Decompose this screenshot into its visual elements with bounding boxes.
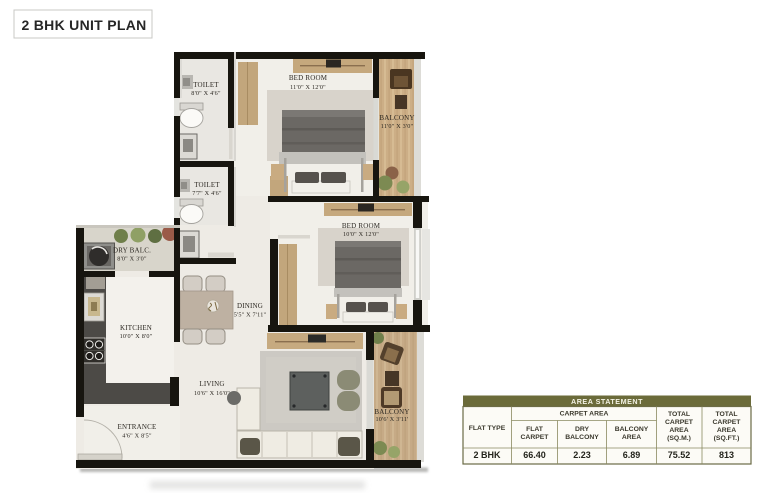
svg-text:DINING: DINING: [237, 302, 263, 310]
svg-text:CARPET AREA: CARPET AREA: [560, 411, 609, 418]
svg-text:(SQ.FT.): (SQ.FT.): [714, 435, 740, 442]
svg-text:BALCONY: BALCONY: [374, 408, 409, 416]
svg-text:AREA: AREA: [622, 434, 641, 441]
svg-text:TOILET: TOILET: [193, 81, 219, 89]
svg-text:813: 813: [719, 450, 734, 460]
svg-text:2 BHK UNIT PLAN: 2 BHK UNIT PLAN: [21, 17, 146, 33]
svg-text:5'5" X 7'11": 5'5" X 7'11": [234, 312, 267, 319]
svg-text:7'7" X 4'6": 7'7" X 4'6": [192, 190, 222, 197]
svg-text:FLAT TYPE: FLAT TYPE: [469, 425, 506, 432]
svg-text:75.52: 75.52: [668, 450, 691, 460]
svg-text:CARPET: CARPET: [713, 419, 742, 426]
svg-text:2 BHK: 2 BHK: [473, 450, 501, 460]
svg-text:10'6" X 16'0": 10'6" X 16'0": [194, 390, 230, 397]
svg-text:CARPET: CARPET: [521, 434, 550, 441]
svg-text:TOILET: TOILET: [194, 181, 220, 189]
svg-text:BED ROOM: BED ROOM: [289, 74, 328, 82]
svg-text:BED ROOM: BED ROOM: [342, 222, 381, 230]
svg-text:CARPET: CARPET: [665, 419, 694, 426]
svg-text:TOTAL: TOTAL: [668, 411, 690, 418]
svg-text:11'0" X 12'0": 11'0" X 12'0": [290, 84, 326, 91]
svg-text:AREA: AREA: [669, 427, 688, 434]
svg-text:10'0" X 12'0": 10'0" X 12'0": [343, 231, 379, 238]
svg-text:TOTAL: TOTAL: [715, 411, 737, 418]
svg-text:11'0" X 3'0": 11'0" X 3'0": [381, 123, 414, 130]
svg-text:4'6" X 8'5": 4'6" X 8'5": [122, 433, 152, 440]
svg-text:10'6' X 3'11': 10'6' X 3'11': [376, 416, 409, 423]
svg-text:BALCONY: BALCONY: [615, 426, 649, 433]
svg-text:AREA: AREA: [717, 427, 736, 434]
svg-text:DRY BALC.: DRY BALC.: [113, 247, 151, 255]
svg-text:FLAT: FLAT: [526, 426, 544, 433]
svg-text:BALCONY: BALCONY: [379, 114, 414, 122]
svg-text:BALCONY: BALCONY: [565, 434, 599, 441]
svg-text:6.89: 6.89: [623, 450, 641, 460]
svg-text:DRY: DRY: [575, 426, 590, 433]
svg-text:ENTRANCE: ENTRANCE: [118, 423, 157, 431]
svg-text:LIVING: LIVING: [199, 380, 224, 388]
svg-text:KITCHEN: KITCHEN: [120, 324, 152, 332]
svg-text:10'0" X 8'0": 10'0" X 8'0": [120, 333, 153, 340]
svg-text:(SQ.M.): (SQ.M.): [667, 435, 691, 442]
svg-text:AREA STATEMENT: AREA STATEMENT: [571, 397, 643, 406]
svg-text:8'0" X 3'0": 8'0" X 3'0": [117, 256, 147, 263]
svg-text:2.23: 2.23: [573, 450, 591, 460]
svg-text:66.40: 66.40: [523, 450, 546, 460]
svg-text:8'0" X 4'6": 8'0" X 4'6": [191, 90, 221, 97]
